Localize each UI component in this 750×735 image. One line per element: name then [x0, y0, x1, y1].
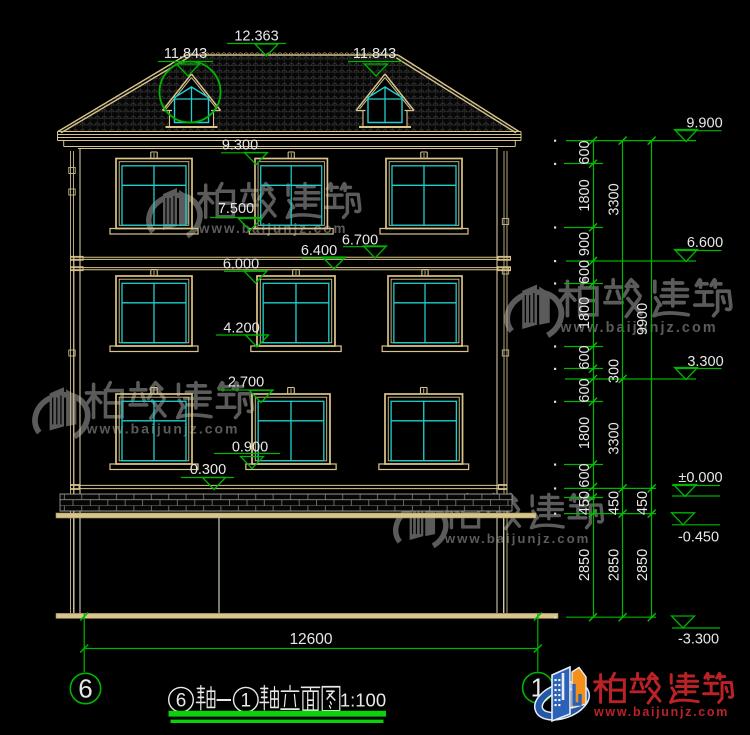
svg-text:900: 900	[577, 232, 593, 256]
svg-text:1800: 1800	[577, 417, 593, 449]
svg-text:±0.000: ±0.000	[678, 470, 722, 486]
svg-text:12600: 12600	[289, 631, 332, 648]
svg-text:6.000: 6.000	[223, 257, 259, 273]
svg-text:600: 600	[577, 260, 593, 284]
svg-text:300: 300	[607, 359, 623, 383]
svg-text:7.500: 7.500	[218, 201, 254, 217]
svg-text:6.600: 6.600	[687, 235, 723, 251]
svg-text:9.300: 9.300	[222, 138, 258, 154]
svg-text:4.200: 4.200	[223, 321, 259, 337]
svg-text:450: 450	[607, 491, 623, 515]
svg-text:2.700: 2.700	[228, 375, 264, 391]
svg-text:11.843: 11.843	[353, 46, 396, 62]
svg-text:1800: 1800	[577, 179, 593, 211]
svg-text:www.baijunjz.com: www.baijunjz.com	[593, 705, 729, 719]
svg-text:450: 450	[635, 491, 651, 515]
svg-text:11.843: 11.843	[164, 46, 207, 62]
svg-text:6: 6	[78, 674, 92, 704]
svg-text:1: 1	[241, 691, 252, 712]
svg-text:6: 6	[176, 691, 187, 712]
svg-text:1:100: 1:100	[340, 690, 386, 711]
svg-text:2850: 2850	[577, 549, 593, 581]
svg-text:3300: 3300	[607, 422, 623, 454]
svg-text:12.363: 12.363	[234, 29, 278, 45]
svg-text:1800: 1800	[577, 297, 593, 329]
svg-text:2850: 2850	[607, 549, 623, 581]
svg-text:450: 450	[577, 491, 593, 515]
svg-text:600: 600	[577, 378, 593, 402]
svg-text:600: 600	[577, 140, 593, 164]
svg-text:0.300: 0.300	[190, 462, 226, 478]
svg-text:-3.300: -3.300	[678, 632, 719, 648]
svg-text:9900: 9900	[635, 303, 651, 335]
svg-text:-0.450: -0.450	[678, 530, 719, 546]
svg-text:3300: 3300	[607, 183, 623, 215]
svg-text:600: 600	[577, 463, 593, 487]
svg-text:600: 600	[577, 345, 593, 369]
svg-text:2850: 2850	[635, 549, 651, 581]
